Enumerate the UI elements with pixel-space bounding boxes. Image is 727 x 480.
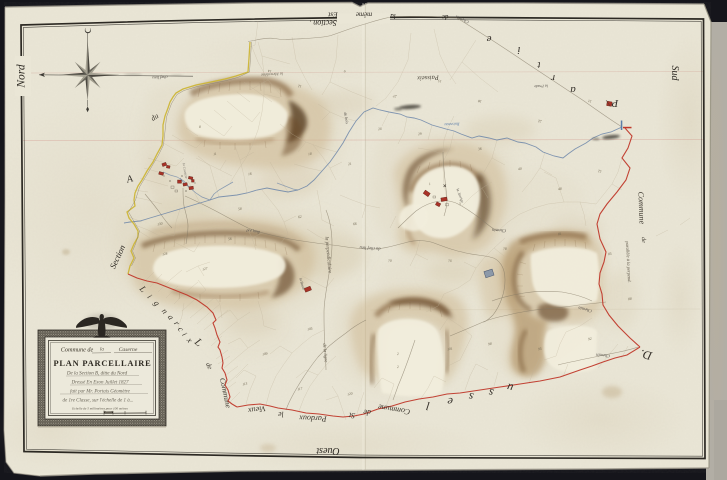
svg-text:Nord: Nord — [16, 64, 28, 88]
svg-text:la Prade: la Prade — [534, 84, 548, 89]
svg-text:de 1re Classe, sur l'échelle d: de 1re Classe, sur l'échelle de 1 à... — [62, 399, 133, 404]
svg-text:Ruisseau: Ruisseau — [444, 122, 460, 128]
svg-text:Sud: Sud — [669, 66, 680, 82]
svg-text:chef lieu: chef lieu — [151, 75, 167, 81]
svg-text:e: e — [486, 33, 491, 45]
svg-text:Ouest: Ouest — [316, 445, 340, 456]
svg-text:i: i — [517, 44, 520, 56]
svg-text:Commune de: Commune de — [61, 347, 94, 354]
svg-text:r: r — [550, 72, 555, 84]
svg-text:Caserne: Caserne — [119, 347, 138, 353]
svg-text:Echelle de 5 millimètres pour: Echelle de 5 millimètres pour 100 mètres — [71, 407, 128, 411]
svg-text:de: de — [362, 408, 371, 418]
svg-text:même: même — [356, 11, 372, 19]
svg-text:PLAN PARCELLAIRE: PLAN PARCELLAIRE — [53, 359, 151, 368]
svg-text:Section .: Section . — [309, 19, 337, 28]
svg-text:la: la — [100, 348, 104, 353]
svg-text:a: a — [570, 84, 576, 96]
svg-text:de: de — [442, 13, 449, 21]
svg-text:P: P — [611, 97, 619, 109]
svg-text:Commune: Commune — [636, 192, 646, 225]
svg-text:Chemin: Chemin — [491, 228, 506, 234]
svg-text:le: le — [277, 410, 284, 419]
svg-text:Est: Est — [327, 11, 339, 20]
svg-text:la: la — [390, 12, 396, 20]
svg-text:Paisseix: Paisseix — [417, 74, 440, 82]
svg-text:Pardoux: Pardoux — [299, 414, 328, 424]
svg-text:de: de — [640, 237, 646, 243]
